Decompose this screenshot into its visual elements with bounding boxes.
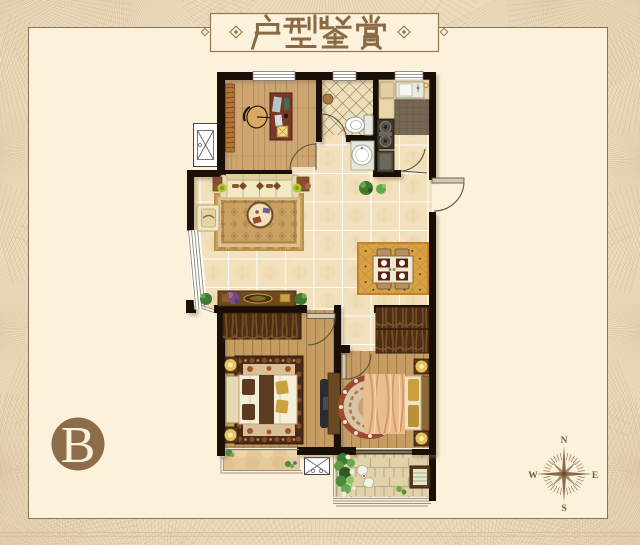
svg-text:E: E <box>592 471 598 481</box>
svg-text:S: S <box>561 504 566 514</box>
svg-text:B: B <box>61 417 96 474</box>
svg-text:W: W <box>528 471 538 481</box>
svg-text:N: N <box>561 436 568 446</box>
